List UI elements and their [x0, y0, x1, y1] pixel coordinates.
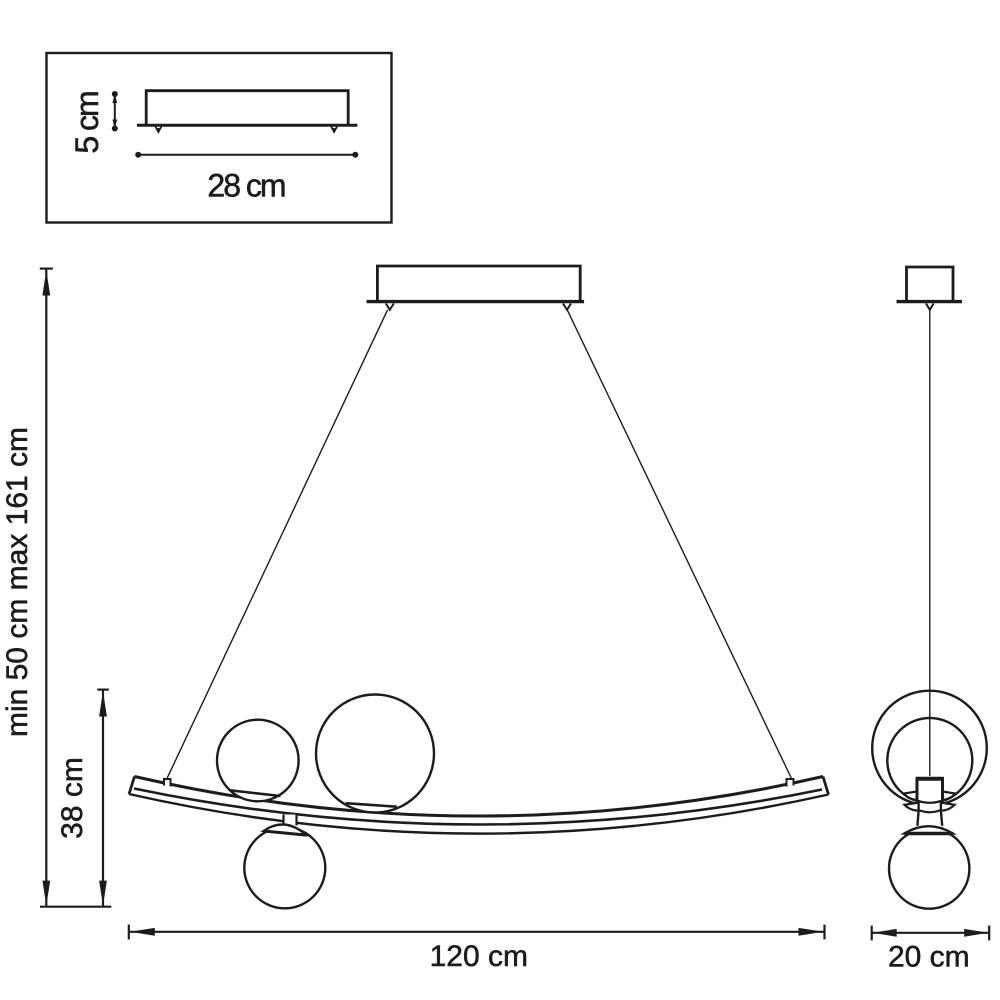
svg-text:min 50 cm max 161 cm: min 50 cm max 161 cm — [1, 427, 34, 737]
svg-text:20 cm: 20 cm — [888, 940, 970, 973]
svg-text:38 cm: 38 cm — [56, 757, 89, 839]
svg-text:120 cm: 120 cm — [430, 940, 528, 973]
svg-text:5 cm: 5 cm — [69, 92, 105, 154]
svg-text:28 cm: 28 cm — [207, 168, 284, 204]
